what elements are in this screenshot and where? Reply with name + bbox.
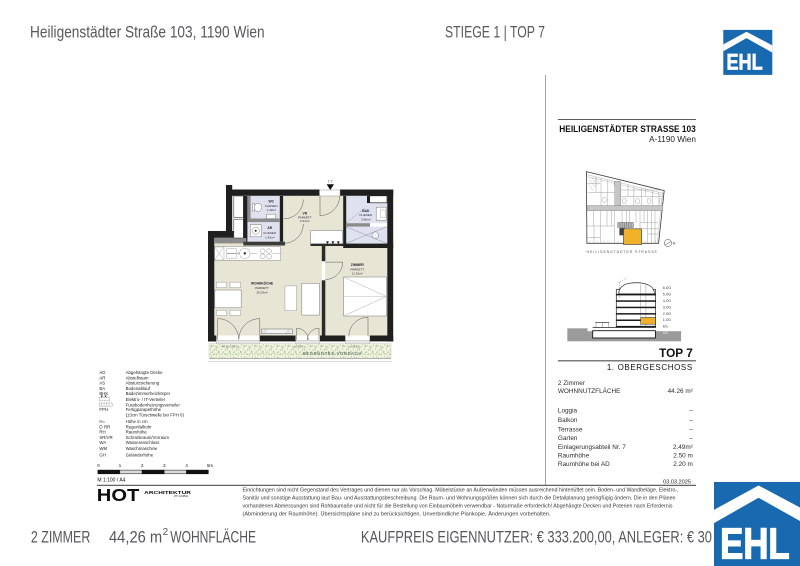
svg-text:1.43m²: 1.43m² xyxy=(267,208,276,212)
svg-text:M 1:100 / A4: M 1:100 / A4 xyxy=(97,478,125,484)
svg-text:Geländerhöhe: Geländerhöhe xyxy=(126,452,154,457)
svg-text:20.03m²: 20.03m² xyxy=(256,290,267,294)
svg-text:6.21m²: 6.21m² xyxy=(300,219,309,223)
svg-text:AS: AS xyxy=(99,381,105,386)
svg-text:03.03.2025: 03.03.2025 xyxy=(663,480,691,486)
svg-text:BEGRÜNTES VORDACH: BEGRÜNTES VORDACH xyxy=(303,351,362,356)
svg-text:+0 0.10: +0 0.10 xyxy=(350,345,359,349)
svg-text:2.49m²: 2.49m² xyxy=(673,444,693,451)
svg-text:2 Zimmer: 2 Zimmer xyxy=(558,380,586,387)
svg-text:ZT-GMBH: ZT-GMBH xyxy=(174,494,188,498)
svg-text:2.20 m: 2.20 m xyxy=(673,461,693,468)
svg-text:2 ZIMMER: 2 ZIMMER xyxy=(31,528,91,546)
svg-text:Badezimmerheizkörper: Badezimmerheizkörper xyxy=(126,391,171,396)
svg-text:GH: GH xyxy=(99,452,106,457)
svg-text:3.OG: 3.OG xyxy=(663,305,671,309)
svg-text:4.OG: 4.OG xyxy=(663,299,671,303)
svg-text:Sanitär und sonstige Ausstattu: Sanitär und sonstige Ausstattung laut Ba… xyxy=(243,496,676,502)
svg-text:Abgehängte Decke: Abgehängte Decke xyxy=(126,370,164,375)
svg-text:N: N xyxy=(673,241,676,246)
svg-text:BHK: BHK xyxy=(99,391,108,396)
svg-text:KAUFPREIS EIGENNUTZER: € 333.2: KAUFPREIS EIGENNUTZER: € 333.200,00, ANL… xyxy=(361,528,712,546)
svg-text:5.OG: 5.OG xyxy=(663,293,671,297)
svg-text:1.43m²: 1.43m² xyxy=(265,236,274,240)
svg-text:H=: H= xyxy=(99,419,105,424)
svg-text:Fertigparapethöhe: Fertigparapethöhe xyxy=(126,407,162,412)
svg-text:–: – xyxy=(689,427,693,434)
svg-text:+0 0.10: +0 0.10 xyxy=(294,345,303,349)
svg-text:11.91m²: 11.91m² xyxy=(352,272,363,276)
svg-text:WOHNFLÄCHE: WOHNFLÄCHE xyxy=(170,528,256,546)
svg-text:Raumhöhe bei AD: Raumhöhe bei AD xyxy=(558,461,610,468)
svg-text:WA: WA xyxy=(99,440,106,445)
svg-text:Heiligenstädter Straße 103, 11: Heiligenstädter Straße 103, 1190 Wien xyxy=(30,23,265,41)
svg-text:1. OBERGESCHOSS: 1. OBERGESCHOSS xyxy=(607,363,693,372)
svg-text:Garten: Garten xyxy=(558,435,578,442)
svg-text:Elektro- / IT-Verteiler: Elektro- / IT-Verteiler xyxy=(126,397,166,402)
svg-text:HEILIGENSTÄDTER STRASSE: HEILIGENSTÄDTER STRASSE xyxy=(587,250,659,254)
svg-text:Balkon: Balkon xyxy=(558,417,578,424)
svg-text:44.26 m²: 44.26 m² xyxy=(668,388,693,395)
svg-text:44,26 m: 44,26 m xyxy=(109,528,162,546)
svg-text:–: – xyxy=(689,407,693,414)
svg-text:Wasseranschluss: Wasseranschluss xyxy=(126,440,161,445)
svg-text:WM: WM xyxy=(99,446,107,451)
svg-text:Raumhöhe: Raumhöhe xyxy=(558,453,590,460)
svg-text:2: 2 xyxy=(163,527,169,538)
svg-text:Einlagerungsabteil Nr. 7: Einlagerungsabteil Nr. 7 xyxy=(558,444,626,451)
svg-text:UG: UG xyxy=(663,331,668,335)
svg-text:–: – xyxy=(689,435,693,442)
svg-text:Waschmaschine: Waschmaschine xyxy=(126,446,158,451)
svg-text:2.50 m: 2.50 m xyxy=(673,453,693,460)
svg-text:Einrichtungen sind nicht Gegen: Einrichtungen sind nicht Gegenstand des … xyxy=(243,488,679,494)
svg-text:2.OG: 2.OG xyxy=(663,312,671,316)
svg-text:3.66m²: 3.66m² xyxy=(361,217,370,221)
svg-text:A-1190 Wien: A-1190 Wien xyxy=(649,135,696,144)
svg-text:HEILIGENSTÄDTER STRASSE 103: HEILIGENSTÄDTER STRASSE 103 xyxy=(559,124,696,135)
svg-text:Höhe in cm: Höhe in cm xyxy=(126,419,148,424)
svg-text:(±3cm Türschwelle bei FPH 0): (±3cm Türschwelle bei FPH 0) xyxy=(126,413,185,418)
svg-text:TOP 7: TOP 7 xyxy=(659,346,693,360)
svg-text:FLIESEN: FLIESEN xyxy=(264,231,277,235)
svg-text:HOT: HOT xyxy=(97,485,140,505)
svg-text:(Abminderung der Raumhöhe). Üb: (Abminderung der Raumhöhe). Übersichtspl… xyxy=(243,510,551,517)
svg-text:5m: 5m xyxy=(207,463,213,468)
svg-text:STIEGE 1 | TOP 7: STIEGE 1 | TOP 7 xyxy=(445,23,545,41)
svg-text:ARCHITEKTUR: ARCHITEKTUR xyxy=(144,490,192,495)
svg-text:Absturzsicherung: Absturzsicherung xyxy=(126,381,160,386)
svg-text:AD: AD xyxy=(99,370,105,375)
svg-text:1.OG: 1.OG xyxy=(663,318,671,322)
svg-text:vorhandenen Abmessungen sind R: vorhandenen Abmessungen sind Rohbaumaße … xyxy=(243,504,673,510)
svg-text:Raumhöhe: Raumhöhe xyxy=(126,430,148,435)
svg-text:EG: EG xyxy=(663,325,668,329)
svg-text:Loggia: Loggia xyxy=(558,407,578,414)
svg-text:T T: T T xyxy=(328,180,334,184)
svg-text:–: – xyxy=(689,417,693,424)
svg-text:RH: RH xyxy=(99,430,105,435)
svg-text:AR: AR xyxy=(267,226,272,230)
svg-text:FPH: FPH xyxy=(99,407,108,412)
svg-text:Terrasse: Terrasse xyxy=(558,427,583,434)
svg-text:WOHNNUTZFLÄCHE: WOHNNUTZFLÄCHE xyxy=(558,387,620,395)
svg-text:+0.10 -0.01 0: +0.10 -0.01 0 xyxy=(222,345,238,349)
svg-text:6.OG: 6.OG xyxy=(663,286,671,290)
svg-text:WOHNKÜCHE: WOHNKÜCHE xyxy=(251,282,274,286)
